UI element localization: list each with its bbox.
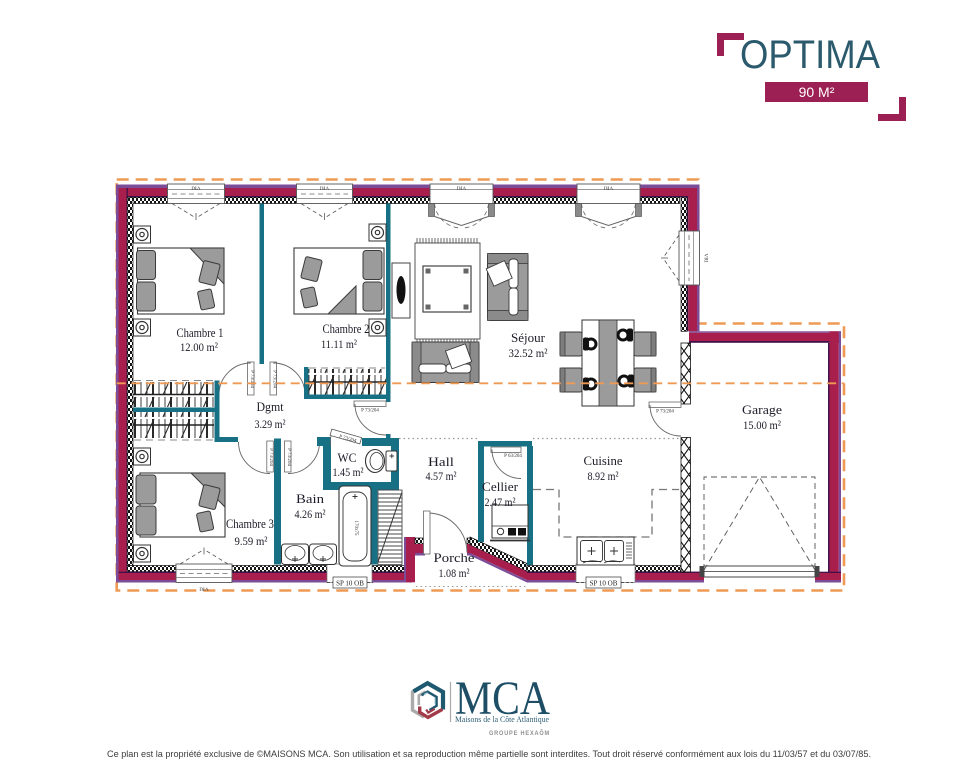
svg-text:Dgmt: Dgmt [257, 399, 284, 414]
svg-text:11.11 m²: 11.11 m² [321, 337, 357, 351]
svg-text:Cuisine: Cuisine [584, 453, 623, 468]
svg-text:3.29 m²: 3.29 m² [255, 417, 286, 431]
svg-text:Hall: Hall [428, 454, 454, 469]
svg-text:P 73/204: P 73/204 [272, 370, 277, 388]
svg-text:VRI: VRI [703, 253, 709, 263]
svg-text:15.00 m²: 15.00 m² [743, 418, 781, 432]
svg-text:SP 10 OB: SP 10 OB [590, 580, 618, 588]
svg-text:WC: WC [338, 450, 357, 465]
svg-text:4.57 m²: 4.57 m² [426, 469, 457, 483]
svg-text:Chambre 3: Chambre 3 [226, 516, 274, 531]
svg-text:Chambre 2: Chambre 2 [323, 321, 370, 336]
svg-text:SP 10 OB: SP 10 OB [336, 580, 364, 588]
svg-text:VRI: VRI [199, 586, 209, 592]
svg-text:Porche: Porche [434, 550, 475, 565]
svg-text:Ce plan est la propriété exclu: Ce plan est la propriété exclusive de ©M… [107, 749, 871, 759]
svg-text:P 73/204: P 73/204 [249, 370, 254, 388]
svg-text:Cellier: Cellier [482, 479, 519, 494]
svg-text:P 73/204: P 73/204 [361, 409, 379, 414]
svg-text:32.52 m²: 32.52 m² [509, 346, 548, 360]
svg-text:VRI: VRI [457, 185, 467, 191]
svg-text:Chambre 1: Chambre 1 [177, 325, 224, 340]
svg-text:OPTIMA: OPTIMA [740, 33, 880, 77]
svg-text:P 73/204: P 73/204 [656, 410, 674, 415]
svg-text:2.47 m²: 2.47 m² [485, 495, 516, 509]
svg-text:VRI: VRI [604, 185, 614, 191]
svg-text:170x75: 170x75 [353, 521, 358, 537]
svg-text:9.59 m²: 9.59 m² [235, 534, 268, 548]
svg-text:Garage: Garage [742, 402, 782, 417]
svg-text:P 63/204: P 63/204 [504, 454, 522, 459]
svg-text:P 73/204: P 73/204 [286, 448, 291, 466]
svg-text:8.92 m²: 8.92 m² [588, 469, 619, 483]
svg-text:90 M²: 90 M² [799, 84, 835, 100]
svg-text:Bain: Bain [296, 491, 325, 506]
svg-text:VRI: VRI [320, 185, 330, 191]
svg-text:1.08 m²: 1.08 m² [439, 566, 470, 580]
svg-text:VRI: VRI [191, 185, 201, 191]
svg-text:P 73/204: P 73/204 [268, 448, 273, 466]
svg-text:12.00 m²: 12.00 m² [180, 340, 218, 354]
svg-text:Séjour: Séjour [511, 330, 546, 345]
svg-text:1.45 m²: 1.45 m² [333, 465, 364, 479]
svg-text:Maisons de la Côte Atlantique: Maisons de la Côte Atlantique [455, 714, 549, 724]
svg-text:4.26 m²: 4.26 m² [295, 507, 326, 521]
svg-text:GROUPE HEXAÔM: GROUPE HEXAÔM [489, 728, 550, 737]
